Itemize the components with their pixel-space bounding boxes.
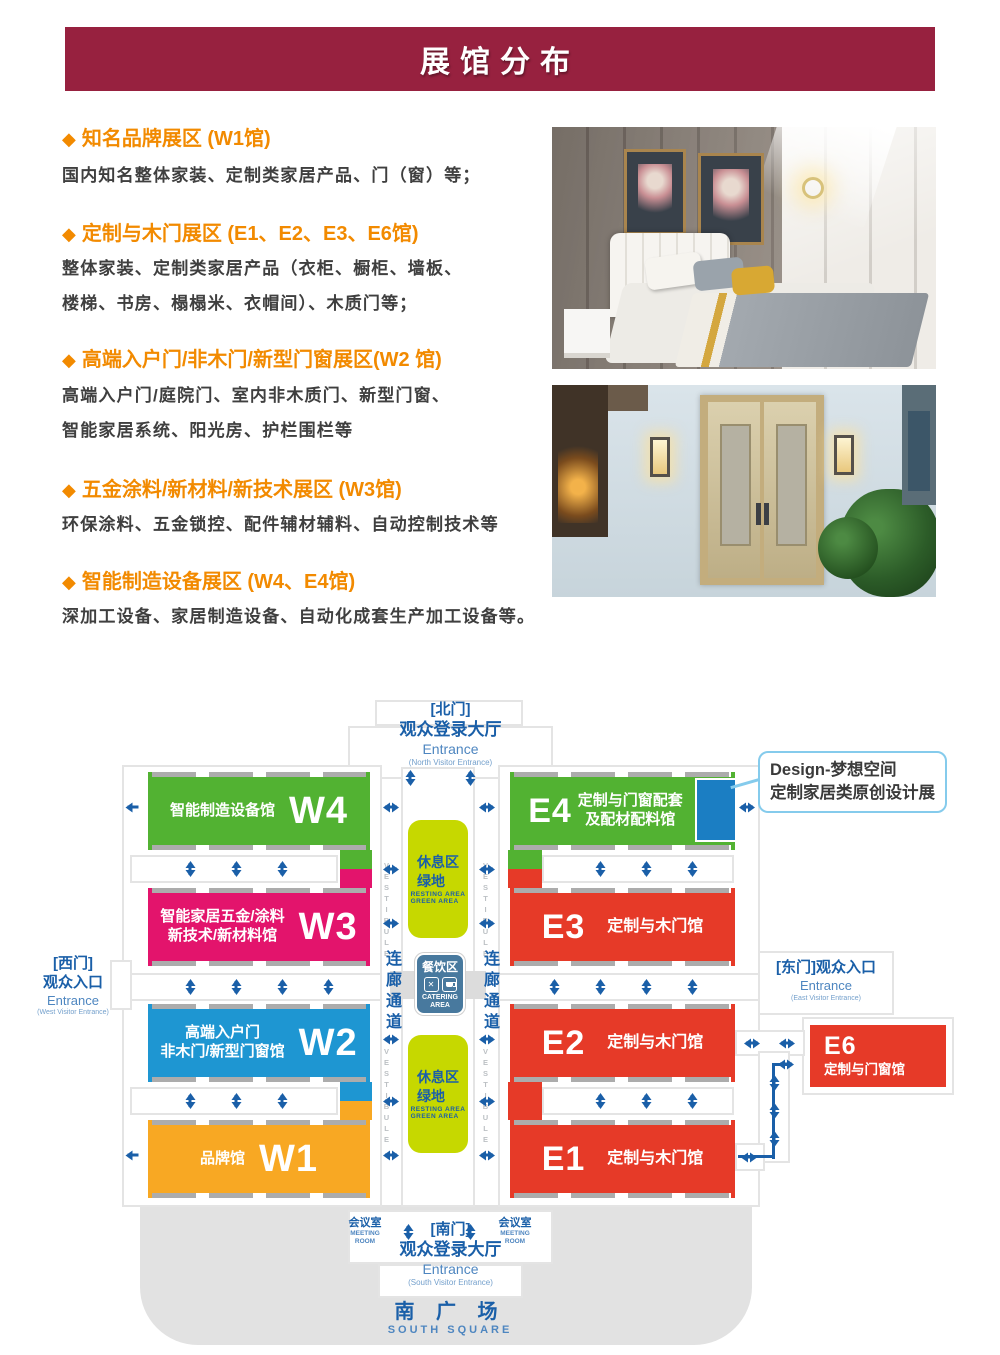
wall: [514, 845, 731, 850]
double-arrow-icon: [385, 868, 397, 871]
double-arrow-icon: [189, 981, 192, 993]
hall-code: W1: [259, 1138, 318, 1181]
wall: [514, 1004, 731, 1009]
hall-W2: 高端入户门非木门/新型门窗馆 W2: [148, 1004, 370, 1082]
hall-connector: [508, 1082, 542, 1120]
rest-area-north: 休息区绿地 RESTING AREAGREEN AREA: [408, 820, 468, 938]
double-arrow-icon: [281, 981, 284, 993]
double-arrow-icon: [409, 772, 412, 784]
hall-code: E4: [528, 792, 572, 831]
double-arrow-icon: [645, 981, 648, 993]
diamond-icon: ◆: [62, 572, 76, 593]
double-arrow-icon: [281, 1095, 284, 1107]
double-arrow-icon: [481, 922, 493, 925]
double-arrow-icon: [741, 806, 753, 809]
double-door: [700, 395, 824, 585]
hall-connector: [508, 869, 542, 888]
hall-code: E3: [542, 908, 586, 947]
page: 展馆分布 ◆知名品牌展区 (W1馆) 国内知名整体家装、定制类家居产品、门（窗）…: [0, 0, 1000, 1355]
double-arrow-icon: [481, 868, 493, 871]
section-heading-doors: ◆定制与木门展区 (E1、E2、E3、E6馆): [62, 217, 547, 246]
double-arrow-icon: [691, 1095, 694, 1107]
pendant-lamp: [802, 177, 824, 199]
double-arrow-icon: [469, 772, 472, 784]
diamond-icon: ◆: [62, 129, 76, 150]
double-arrow-icon: [743, 1156, 755, 1159]
double-arrow-icon: [599, 1095, 602, 1107]
hall-code: W2: [299, 1022, 358, 1065]
wall: [514, 1193, 731, 1198]
double-arrow-icon: [128, 1154, 139, 1157]
rest-area-south: 休息区绿地 RESTING AREAGREEN AREA: [408, 1035, 468, 1153]
door-panel: [708, 402, 760, 578]
pillow: [731, 265, 775, 296]
hall-connector: [340, 869, 372, 888]
design-callout: Design-梦想空间 定制家居类原创设计展: [758, 751, 947, 813]
door-handle: [756, 503, 761, 525]
south-gate-label: [南门] 观众登录大厅 Entrance (South Visitor Entr…: [348, 1221, 553, 1287]
floor-plan-map: 智能制造设备馆 W4 智能家居五金/涂料新技术/新材料馆 W3 高端入户门非木门…: [30, 695, 980, 1353]
hall-connector: [340, 1082, 372, 1101]
utensils-icon: ✕: [424, 977, 439, 992]
double-arrow-icon: [773, 1105, 776, 1117]
wall-art-frame: [698, 153, 764, 245]
double-arrow-icon: [553, 981, 556, 993]
diamond-icon: ◆: [62, 224, 76, 245]
double-arrow-icon: [599, 981, 602, 993]
north-gate-label: [北门] 观众登录大厅 Entrance (North Visitor Entr…: [348, 701, 553, 767]
wall: [152, 961, 366, 966]
section-body-w2: 高端入户门/庭院门、室内非木质门、新型门窗、智能家居系统、阳光房、护栏围栏等: [62, 378, 554, 448]
double-arrow-icon: [189, 863, 192, 875]
green-plant: [840, 489, 936, 597]
section-heading-w4e4: ◆智能制造设备展区 (W4、E4馆): [62, 565, 547, 594]
bed-blanket: [675, 293, 929, 367]
double-arrow-icon: [599, 863, 602, 875]
double-arrow-icon: [645, 1095, 648, 1107]
wall: [152, 845, 366, 850]
page-title-banner: 展馆分布: [65, 27, 935, 91]
nightstand: [564, 309, 610, 358]
wall: [152, 772, 366, 777]
wall: [514, 772, 731, 777]
double-arrow-icon: [327, 981, 330, 993]
wall: [152, 1193, 366, 1198]
double-arrow-icon: [385, 1038, 397, 1041]
cup-icon: [442, 977, 457, 992]
display-niche: [552, 385, 608, 537]
door-photo: [552, 385, 936, 597]
hall-E3: E3 定制与木门馆: [510, 888, 735, 966]
section-body-w4e4: 深加工设备、家居制造设备、自动化成套生产加工设备等。: [62, 599, 554, 634]
door-handle: [764, 503, 769, 525]
wall-sconce: [834, 435, 854, 475]
double-arrow-icon: [385, 1154, 397, 1157]
double-arrow-icon: [481, 806, 493, 809]
hall-code: E2: [542, 1024, 586, 1063]
corridor-label: 连廊通道: [379, 950, 403, 1070]
door-panel: [764, 402, 816, 578]
hall-code: W3: [299, 906, 358, 949]
hall-code: E1: [542, 1140, 586, 1179]
double-arrow-icon: [469, 1226, 472, 1238]
wall: [152, 1077, 366, 1082]
wall: [514, 1077, 731, 1082]
section-heading-w3: ◆五金涂料/新材料/新技术展区 (W3馆): [62, 473, 547, 502]
double-arrow-icon: [385, 806, 397, 809]
cabinet-corner: [608, 385, 648, 411]
wall: [514, 1120, 731, 1125]
hall-code: W4: [289, 790, 348, 833]
hall-code: E6: [824, 1034, 857, 1059]
catering-area: 餐饮区 ✕ CATERING AREA: [415, 953, 465, 1015]
wall-sconce: [650, 437, 670, 477]
diamond-icon: ◆: [62, 350, 76, 371]
double-arrow-icon: [773, 1133, 776, 1145]
double-arrow-icon: [235, 863, 238, 875]
hall-connector: [340, 850, 372, 869]
page-title: 展馆分布: [420, 37, 580, 81]
double-arrow-icon: [481, 1154, 493, 1157]
hall-connector: [508, 850, 542, 869]
section-heading-w2: ◆高端入户门/非木门/新型门窗展区(W2 馆): [62, 343, 547, 372]
corridor-label: 连廊通道: [477, 950, 501, 1070]
wall-art-frame: [624, 149, 686, 235]
side-doorway: [902, 385, 936, 505]
west-gate-label: [西门] 观众入口 Entrance (West Visitor Entranc…: [30, 955, 116, 1016]
hall-E6: E6 定制与门窗馆: [810, 1025, 946, 1087]
double-arrow-icon: [407, 1226, 410, 1238]
diamond-icon: ◆: [62, 480, 76, 501]
double-arrow-icon: [780, 1063, 792, 1066]
hall-W4: 智能制造设备馆 W4: [148, 772, 370, 850]
section-body-w3: 环保涂料、五金锁控、配件辅材辅料、自动控制技术等: [62, 507, 554, 542]
double-arrow-icon: [189, 1095, 192, 1107]
east-corridor: [498, 973, 774, 1001]
double-arrow-icon: [281, 863, 284, 875]
west-corridor: [125, 973, 382, 1001]
hall-gap-corridor: [542, 855, 734, 883]
double-arrow-icon: [773, 1077, 776, 1089]
east-gate-label: [东门]观众入口 Entrance (East Visitor Entrance…: [758, 959, 894, 1002]
double-arrow-icon: [385, 922, 397, 925]
double-arrow-icon: [746, 1042, 758, 1045]
section-heading-w1: ◆知名品牌展区 (W1馆): [62, 122, 547, 151]
hall-connector: [340, 1101, 372, 1120]
double-arrow-icon: [481, 1100, 493, 1103]
wall: [514, 961, 731, 966]
bedroom-photo: [552, 127, 936, 369]
hall-W1: 品牌馆 W1: [148, 1120, 370, 1198]
double-arrow-icon: [691, 863, 694, 875]
double-arrow-icon: [781, 1042, 793, 1045]
double-arrow-icon: [691, 981, 694, 993]
wall: [152, 1004, 366, 1009]
double-arrow-icon: [128, 806, 139, 809]
double-arrow-icon: [385, 1100, 397, 1103]
hall-gap-corridor: [542, 1087, 734, 1115]
section-body-doors: 整体家装、定制类家居产品（衣柜、橱柜、墙板、楼梯、书房、榻榻米、衣帽间）、木质门…: [62, 251, 554, 321]
double-arrow-icon: [235, 1095, 238, 1107]
hall-E2: E2 定制与木门馆: [510, 1004, 735, 1082]
double-arrow-icon: [235, 981, 238, 993]
double-arrow-icon: [645, 863, 648, 875]
double-arrow-icon: [481, 1038, 493, 1041]
south-square-label: 南 广 场 SOUTH SQUARE: [290, 1295, 610, 1336]
wall: [152, 1120, 366, 1125]
section-body-w1: 国内知名整体家装、定制类家居产品、门（窗）等；: [62, 158, 554, 193]
wall: [514, 888, 731, 893]
hall-W3: 智能家居五金/涂料新技术/新材料馆 W3: [148, 888, 370, 966]
hall-E1: E1 定制与木门馆: [510, 1120, 735, 1198]
wall: [152, 888, 366, 893]
